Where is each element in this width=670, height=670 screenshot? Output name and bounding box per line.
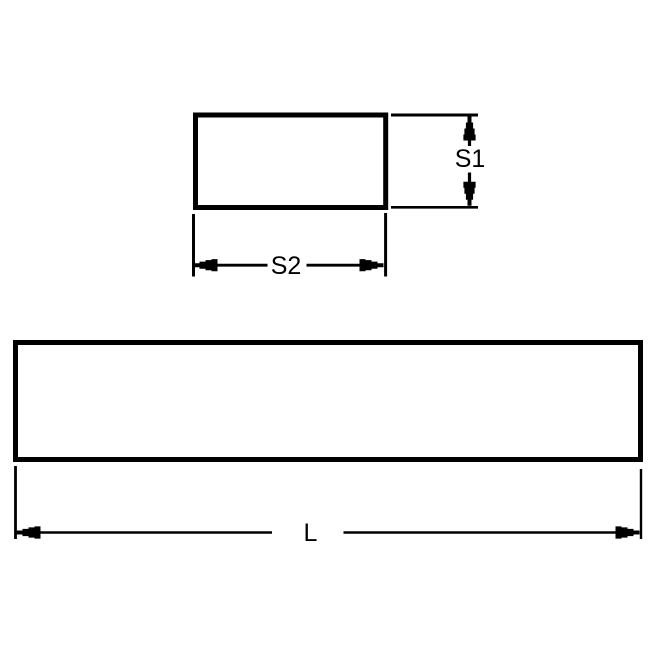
svg-text:S1: S1 <box>455 145 486 173</box>
svg-text:L: L <box>304 519 318 547</box>
svg-text:S2: S2 <box>271 252 302 280</box>
